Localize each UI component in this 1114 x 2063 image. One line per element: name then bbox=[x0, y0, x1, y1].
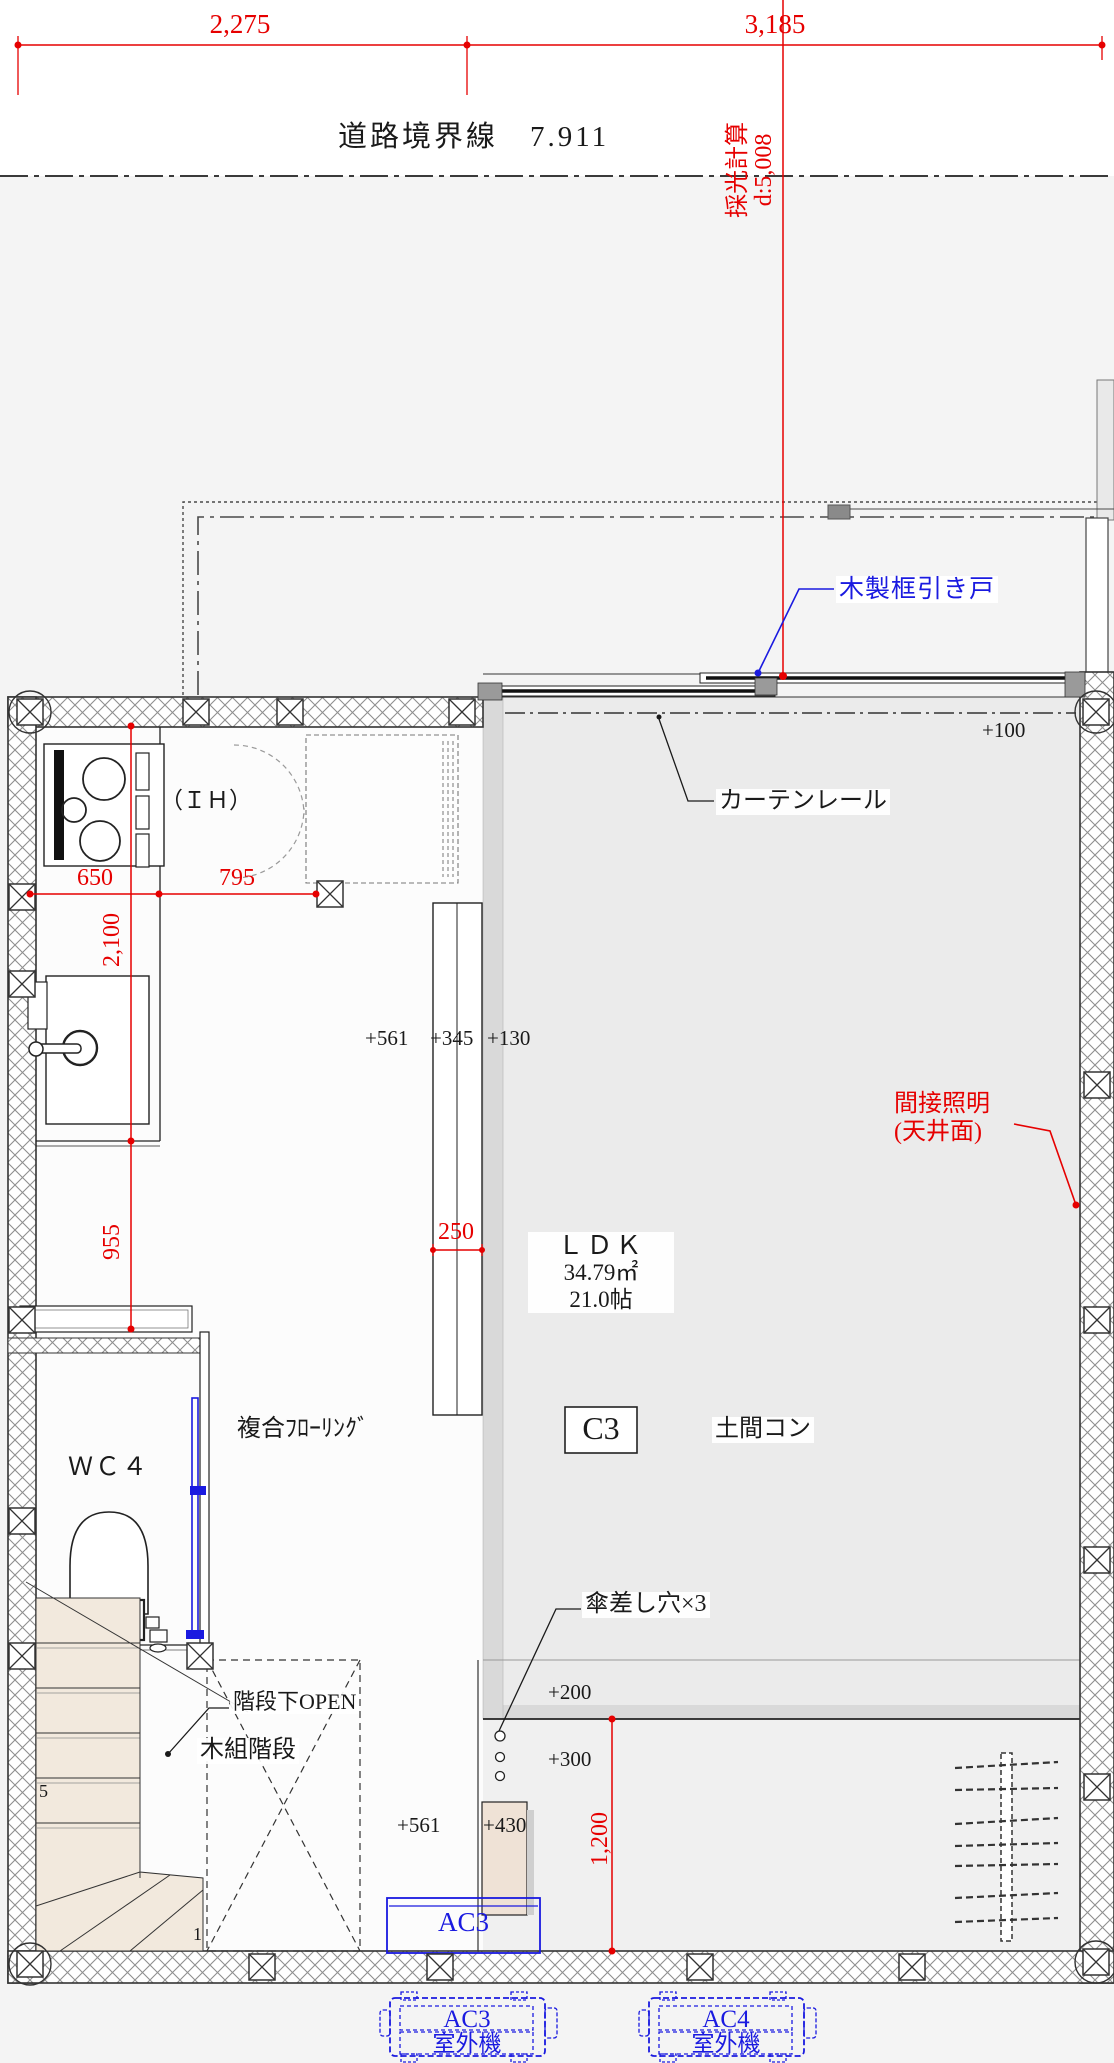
room-tatami: 21.0帖 bbox=[531, 1286, 671, 1313]
road-boundary-label: 道路境界線 7.911 bbox=[338, 122, 609, 153]
wooden-stairs-label: 木組階段 bbox=[197, 1738, 299, 1764]
hall-cabinet bbox=[8, 1306, 206, 1353]
ih-cooktop-label: （ＩＨ） bbox=[160, 789, 252, 814]
stair-number-5: 5 bbox=[39, 1782, 48, 1801]
level-plus561: +561 bbox=[365, 1027, 408, 1050]
indirect-lighting-line2: (天井面) bbox=[894, 1118, 990, 1146]
dim-top-left: 2,275 bbox=[150, 10, 330, 39]
dim-250: 250 bbox=[430, 1220, 482, 1246]
daylight-calc-label: 採光計算 d:5,008 bbox=[726, 95, 778, 245]
level-plus345: +345 bbox=[430, 1027, 473, 1050]
level-plus100: +100 bbox=[982, 719, 1025, 742]
column-mark-c3: C3 bbox=[565, 1411, 637, 1446]
indirect-lighting-line1: 間接照明 bbox=[894, 1090, 990, 1118]
room-name: ＬＤＫ bbox=[531, 1232, 671, 1259]
room-area: 34.79㎡ bbox=[531, 1259, 671, 1286]
dim-2100: 2,100 bbox=[100, 900, 126, 980]
level-plus430: +430 bbox=[483, 1814, 526, 1837]
curtain-rail-label: カーテンレール bbox=[716, 789, 890, 815]
level-plus561b: +561 bbox=[397, 1814, 440, 1837]
wc-label: ＷＣ４ bbox=[68, 1454, 149, 1481]
daylight-calc-line2: d:5,008 bbox=[752, 95, 778, 245]
dim-955: 955 bbox=[100, 1202, 126, 1282]
dim-1200: 1,200 bbox=[588, 1799, 614, 1879]
ac-outdoor-1-label: 室外機 bbox=[433, 2031, 502, 2056]
partition-wall-250 bbox=[433, 903, 482, 1415]
dim-top-right: 3,185 bbox=[690, 10, 860, 39]
room-info-block: ＬＤＫ 34.79㎡ 21.0帖 bbox=[528, 1232, 674, 1313]
indirect-lighting-label: 間接照明 (天井面) bbox=[894, 1090, 990, 1146]
ih-cooktop bbox=[44, 744, 164, 867]
dim-650: 650 bbox=[58, 866, 132, 892]
flooring-label: 複合ﾌﾛｰﾘﾝｸﾞ bbox=[237, 1417, 369, 1443]
ac-outdoor-1-name: AC3 bbox=[443, 2006, 490, 2033]
ac-outdoor-2-name: AC4 bbox=[702, 2006, 750, 2033]
doma-concrete-label: 土間コン bbox=[712, 1417, 814, 1443]
level-plus300: +300 bbox=[548, 1748, 591, 1771]
umbrella-holes bbox=[495, 1731, 505, 1781]
daylight-calc-line1: 採光計算 bbox=[726, 95, 752, 245]
level-plus200: +200 bbox=[548, 1681, 591, 1704]
ac-outdoor-2-label: 室外機 bbox=[692, 2031, 761, 2056]
dim-795: 795 bbox=[200, 866, 274, 892]
ac-indoor-label: AC3 bbox=[387, 1908, 540, 1937]
under-stairs-open-label: 階段下OPEN bbox=[230, 1690, 359, 1714]
level-plus130: +130 bbox=[487, 1027, 530, 1050]
umbrella-holes-label: 傘差し穴×3 bbox=[582, 1592, 710, 1618]
stair-number-1: 1 bbox=[193, 1925, 202, 1944]
floor-plan-page: AC3 室外機 AC4 室外機 2,275 3,185 道路境界線 7.911 … bbox=[0, 0, 1114, 2063]
wood-sliding-door-label: 木製框引き戸 bbox=[836, 576, 998, 603]
